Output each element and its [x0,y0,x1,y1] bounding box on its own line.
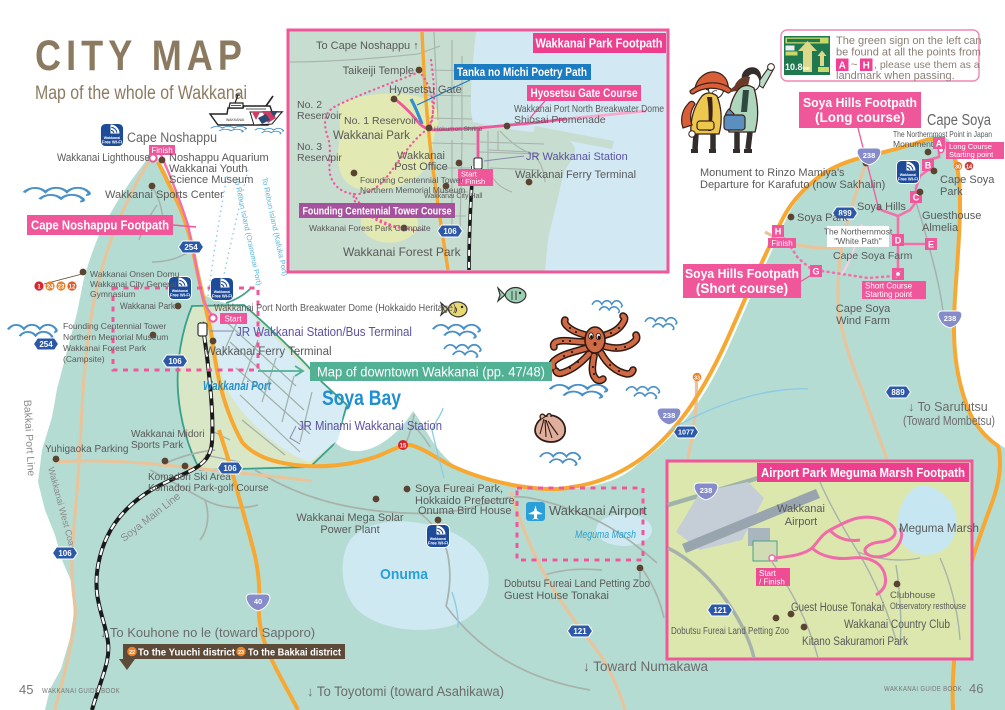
svg-text:Power Plant: Power Plant [320,524,379,536]
svg-text:Gymnasium: Gymnasium [90,289,135,299]
svg-text:A: A [936,139,943,149]
svg-text:Wakkanai Ferry Terminal: Wakkanai Ferry Terminal [515,169,636,181]
svg-text:46: 46 [969,681,983,696]
svg-text:↓ To Toyotomi (toward Asahikaw: ↓ To Toyotomi (toward Asahikawa) [307,684,504,699]
svg-text:km: km [803,66,811,72]
svg-text:↓ To Sarufutsu: ↓ To Sarufutsu [908,400,988,414]
svg-text:Kitano Sakuramori Park: Kitano Sakuramori Park [802,636,908,648]
svg-text:Start: Start [225,315,243,324]
svg-text:Meguma Marsh: Meguma Marsh [575,529,636,541]
svg-text:Cape Soya: Cape Soya [940,174,995,186]
svg-text:889: 889 [891,388,905,397]
svg-text:Almelia: Almelia [922,222,959,234]
svg-text:45: 45 [19,682,33,697]
svg-text:Dobutsu Fureai Land Petting Zo: Dobutsu Fureai Land Petting Zoo [504,578,650,590]
svg-text:Cape Noshappu Footpath: Cape Noshappu Footpath [31,219,169,233]
svg-text:To the Yuuchi district: To the Yuuchi district [138,647,235,659]
svg-text:Wakkanai Park: Wakkanai Park [333,130,410,142]
svg-text:238: 238 [944,314,957,323]
svg-text:The green sign on the left can: The green sign on the left can [836,35,982,47]
svg-text:Komadori Ski Area: Komadori Ski Area [148,472,231,483]
svg-text:106: 106 [443,227,457,236]
svg-text:Komadori Park-golf Course: Komadori Park-golf Course [148,483,269,494]
svg-text:Airport: Airport [785,516,817,528]
svg-text:Guest House Tonakai: Guest House Tonakai [791,602,884,614]
svg-text:Wakkanai Forest Park: Wakkanai Forest Park [63,343,147,353]
svg-text:(Long course): (Long course) [815,110,905,125]
svg-text:106: 106 [58,549,72,558]
svg-text:Departure for Karafuto (now Sa: Departure for Karafuto (now Sakhalin) [700,179,885,191]
svg-text:Park: Park [940,186,963,198]
svg-text:1077: 1077 [678,428,694,437]
svg-text:Wakkanai City Hall: Wakkanai City Hall [424,193,483,200]
svg-text:Soya Bay: Soya Bay [322,387,401,410]
svg-text:CITY MAP: CITY MAP [35,32,247,80]
svg-text:H: H [775,227,782,237]
svg-text:254: 254 [184,243,198,252]
svg-text:238: 238 [700,486,713,495]
svg-text:Cape Soya Farm: Cape Soya Farm [833,250,913,262]
svg-text:Wakkanai Park: Wakkanai Park [120,301,175,312]
svg-text:Reservoir: Reservoir [297,110,342,122]
svg-text:Wakkanai Port: Wakkanai Port [203,378,272,393]
svg-text:Reservpir: Reservpir [297,152,342,164]
svg-text:Soya Hills Footpath: Soya Hills Footpath [685,266,799,281]
svg-text:121: 121 [573,627,587,636]
svg-text:Founding Centennial Tower Cour: Founding Centennial Tower Course [303,206,452,218]
svg-text:Soya Fureai Park,: Soya Fureai Park, [415,483,503,495]
svg-text:Tanka no Michi Poetry Path: Tanka no Michi Poetry Path [457,67,587,79]
svg-text:Dobutsu Fureai Land Petting Zo: Dobutsu Fureai Land Petting Zoo [671,626,789,637]
svg-text:Map of the whole of Wakkanai: Map of the whole of Wakkanai [35,83,247,104]
svg-text:(Toward Mombetsu): (Toward Mombetsu) [903,414,995,428]
svg-text:Wakkanai Airport: Wakkanai Airport [549,503,647,518]
svg-text:landmark when passing.: landmark when passing. [836,70,955,82]
svg-text:Meguma Marsh: Meguma Marsh [899,523,979,535]
svg-text:33: 33 [694,376,700,382]
svg-text:WAKKANAI GUIDE BOOK: WAKKANAI GUIDE BOOK [42,686,120,695]
svg-text:Guesthouse: Guesthouse [922,210,981,222]
svg-text:24: 24 [47,284,54,290]
svg-text:Onuma: Onuma [380,566,429,583]
svg-text:The Northernmost: The Northernmost [824,227,893,237]
svg-text:23: 23 [58,284,65,290]
svg-text:Wind Farm: Wind Farm [836,315,890,327]
svg-text:Wakkanai: Wakkanai [777,503,825,515]
svg-text:Monument to Rinzo Mamiya's: Monument to Rinzo Mamiya's [700,167,845,179]
svg-text:Soya Hills: Soya Hills [857,201,906,213]
svg-text:"White Path": "White Path" [834,236,882,246]
svg-text:Science Museum: Science Museum [169,174,253,186]
svg-text:238: 238 [663,411,676,420]
svg-text:Guest House Tonakai: Guest House Tonakai [504,590,609,602]
svg-text:Wakkanai Onsen Domu: Wakkanai Onsen Domu [90,269,180,279]
svg-text:10.8: 10.8 [785,62,803,72]
svg-text:JR Wakkanai Station/Bus Termin: JR Wakkanai Station/Bus Terminal [236,324,412,339]
svg-text:Observatory resthouse: Observatory resthouse [890,601,966,612]
svg-text:/ Finish: / Finish [759,578,785,587]
svg-text:Map of downtown Wakkanai (pp.: Map of downtown Wakkanai (pp. 47/48) [317,365,545,380]
svg-text:Hyosetsu Gate Course: Hyosetsu Gate Course [531,88,638,100]
svg-text:Starting point: Starting point [949,150,994,159]
svg-text:23: 23 [238,650,244,656]
svg-text:D: D [895,236,902,246]
svg-text:G: G [812,267,819,277]
svg-text:Taikeiji Temple: Taikeiji Temple [343,65,414,77]
svg-text:Wakkanai Ferry Terminal: Wakkanai Ferry Terminal [205,346,332,358]
svg-text:22: 22 [129,650,135,656]
svg-text:(Campsite): (Campsite) [63,354,105,364]
svg-text:Northern Memorial Museum: Northern Memorial Museum [63,332,168,342]
svg-text:Cape Soya: Cape Soya [927,112,991,129]
svg-text:To Cape Noshappu ↑: To Cape Noshappu ↑ [316,40,419,52]
svg-text:Hyosetsu Gate: Hyosetsu Gate [389,84,462,96]
svg-text:WAKKANAI: WAKKANAI [226,118,244,122]
svg-text:E: E [928,240,934,250]
svg-text:Cape Soya: Cape Soya [836,303,891,315]
svg-text:Clubhouse: Clubhouse [890,590,935,601]
svg-text:WAKKANAI GUIDE BOOK: WAKKANAI GUIDE BOOK [884,684,962,693]
svg-text:15: 15 [400,444,407,450]
svg-text:↓ To Kouhone no le (toward Sap: ↓ To Kouhone no le (toward Sapporo) [100,625,315,640]
svg-text:Cape Noshappu: Cape Noshappu [127,130,217,145]
svg-text:238: 238 [863,151,876,160]
svg-text:Onuma Bird House: Onuma Bird House [418,505,512,517]
svg-text:Wakkanai Lighthouse: Wakkanai Lighthouse [57,152,150,164]
svg-text:Airport Park Meguma Marsh Foot: Airport Park Meguma Marsh Footpath [761,465,965,480]
svg-text:be found at all the points fro: be found at all the points from [836,47,981,59]
svg-text:JR Minami Wakkanai Station: JR Minami Wakkanai Station [298,418,442,433]
svg-text:B: B [925,161,932,171]
svg-text:(Short course): (Short course) [696,281,788,296]
svg-text:Wakkanai Port North Breakwater: Wakkanai Port North Breakwater Dome (Hok… [214,303,456,314]
svg-text:Soya Park: Soya Park [797,212,848,224]
svg-text:40: 40 [254,597,262,606]
svg-text:Yuhigaoka Parking: Yuhigaoka Parking [45,444,128,455]
svg-text:Shiosai Promenade: Shiosai Promenade [514,114,606,126]
svg-text:30: 30 [955,165,961,171]
svg-text:Founding Centennial Tower: Founding Centennial Tower [63,321,166,331]
svg-text:↓ Toward Numakawa: ↓ Toward Numakawa [583,659,709,674]
svg-text:Wakkanai Park Footpath: Wakkanai Park Footpath [536,37,663,51]
svg-text:12: 12 [69,284,76,290]
svg-text:14: 14 [966,165,973,171]
svg-text:Founding Centennial Tower: Founding Centennial Tower [360,175,463,185]
svg-text:106: 106 [168,357,182,366]
svg-text:Starting point: Starting point [865,290,913,299]
svg-text:Sports Park: Sports Park [131,440,184,451]
svg-text:Post Office: Post Office [394,161,448,173]
svg-text:Wakkanai Forest Park Campsite: Wakkanai Forest Park Campsite [309,223,431,233]
svg-text:To the Bakkai district: To the Bakkai district [248,647,341,659]
svg-text:Wakkanai Mega Solar: Wakkanai Mega Solar [296,512,404,524]
svg-text:No. 1 Reservoir: No. 1 Reservoir [344,115,417,127]
svg-text:Wakkanai Midori: Wakkanai Midori [131,429,205,440]
svg-text:121: 121 [713,606,727,615]
svg-text:Wakkanai Forest Park: Wakkanai Forest Park [343,245,462,259]
svg-text:Wakkanai Sports Center: Wakkanai Sports Center [105,189,224,201]
svg-text:Monument: Monument [893,139,934,149]
svg-text:Soya Hills Footpath: Soya Hills Footpath [803,95,917,110]
svg-text:JR Wakkanai Station: JR Wakkanai Station [526,151,628,163]
svg-text:Hokumon Shrine: Hokumon Shrine [434,126,483,133]
svg-text:Wakkanai Country Club: Wakkanai Country Club [844,619,950,631]
svg-text:254: 254 [39,340,53,349]
svg-text:Wakkanai City General: Wakkanai City General [90,279,177,289]
svg-text:Finish: Finish [771,239,792,248]
